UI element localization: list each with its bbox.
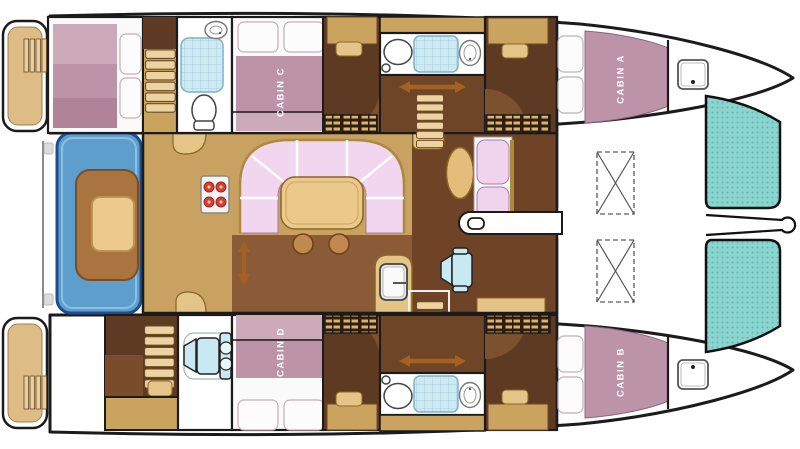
cabin-c-floor (323, 17, 380, 133)
bed-icon (585, 31, 668, 123)
stool-icon (329, 234, 349, 254)
stove-icon (201, 176, 229, 213)
stool-icon (293, 234, 313, 254)
cabin-d-label: CABIN D (275, 327, 286, 377)
port-aft-cabin (48, 17, 143, 133)
salon-table-icon (281, 177, 363, 229)
bedside-seat (336, 392, 362, 406)
bow-trampolines (706, 96, 795, 352)
bedside-seat (502, 44, 528, 58)
deck-locker-hatch-icon (597, 152, 634, 214)
pillow-icon (238, 400, 278, 430)
pillow-icon (238, 22, 278, 52)
door-handle-icon (468, 218, 484, 229)
starboard-corridor (380, 315, 485, 373)
cabin-c: CABIN C (232, 17, 330, 133)
bow-hatch-icon (678, 360, 708, 389)
bedside-seat (502, 390, 528, 404)
pillow-icon (120, 78, 141, 118)
salon-settee-icon (240, 140, 404, 233)
pillow-icon (284, 400, 324, 430)
louver-locker-icon (486, 115, 550, 133)
bowsprit-tongue (706, 215, 795, 235)
washbasin-icon (205, 22, 227, 39)
starboard-dressing-room (485, 315, 557, 430)
cabinet-top (488, 404, 548, 430)
cabin-a-label: CABIN A (615, 54, 626, 104)
cockpit (57, 133, 141, 313)
cleat-icon (44, 143, 53, 154)
washbasin-icon (460, 41, 481, 66)
pillow-icon (558, 377, 583, 413)
shower-icon (414, 36, 458, 72)
port-hull-rooms: CABIN C (48, 17, 708, 148)
nav-seat-counter (477, 298, 545, 313)
starboard-swim-platform (3, 318, 47, 428)
foredeck (597, 152, 634, 302)
louver-locker-icon (325, 115, 377, 133)
starboard-aft-utility (105, 315, 178, 430)
floor-plan-canvas: CABIN C (0, 0, 800, 449)
starboard-forward-bathroom (380, 373, 485, 431)
trampoline-port (706, 96, 780, 208)
starboard-hull-rooms: CABIN D (105, 315, 708, 431)
deck-locker-hatch-icon (597, 240, 634, 302)
cabinet-top (327, 404, 377, 430)
pillow-icon (558, 336, 583, 372)
cabinet-top (488, 18, 548, 44)
port-aft-bathroom (177, 17, 232, 133)
toilet-icon (192, 95, 216, 130)
pillow-icon (558, 36, 583, 72)
louver-locker-icon (325, 315, 377, 333)
port-forward-bathroom (380, 17, 485, 75)
cabin-d: CABIN D (232, 315, 330, 430)
nav-table-icon (447, 148, 474, 199)
shower-icon (181, 38, 223, 92)
cockpit-table-icon (92, 197, 134, 251)
trampoline-starboard (706, 240, 780, 352)
cabin-d-floor (323, 315, 380, 430)
shower-icon (414, 376, 458, 412)
port-aft-companionway (143, 17, 177, 133)
louver-locker-icon (486, 315, 550, 333)
cabinet-top (327, 17, 377, 44)
starboard-aft-desk-room (178, 315, 232, 430)
salon-door-icon (459, 212, 562, 234)
bench-cushion (477, 140, 509, 184)
bed-icon (585, 326, 668, 418)
port-swim-platform (3, 21, 47, 131)
galley-sink-peninsula (375, 255, 412, 313)
bedside-seat (336, 42, 362, 56)
pillow-icon (284, 22, 324, 52)
cabin-c-label: CABIN C (275, 67, 286, 117)
pillow-icon (558, 77, 583, 113)
bow-hatch-icon (678, 60, 708, 89)
washbasin-icon (460, 383, 481, 408)
cabin-b-label: CABIN B (615, 347, 626, 397)
cleat-icon (44, 294, 53, 305)
catamaran-floor-plan: CABIN C (0, 0, 800, 449)
pillow-icon (120, 34, 141, 74)
bedside-seat (148, 381, 172, 396)
port-dressing-room (485, 17, 557, 133)
